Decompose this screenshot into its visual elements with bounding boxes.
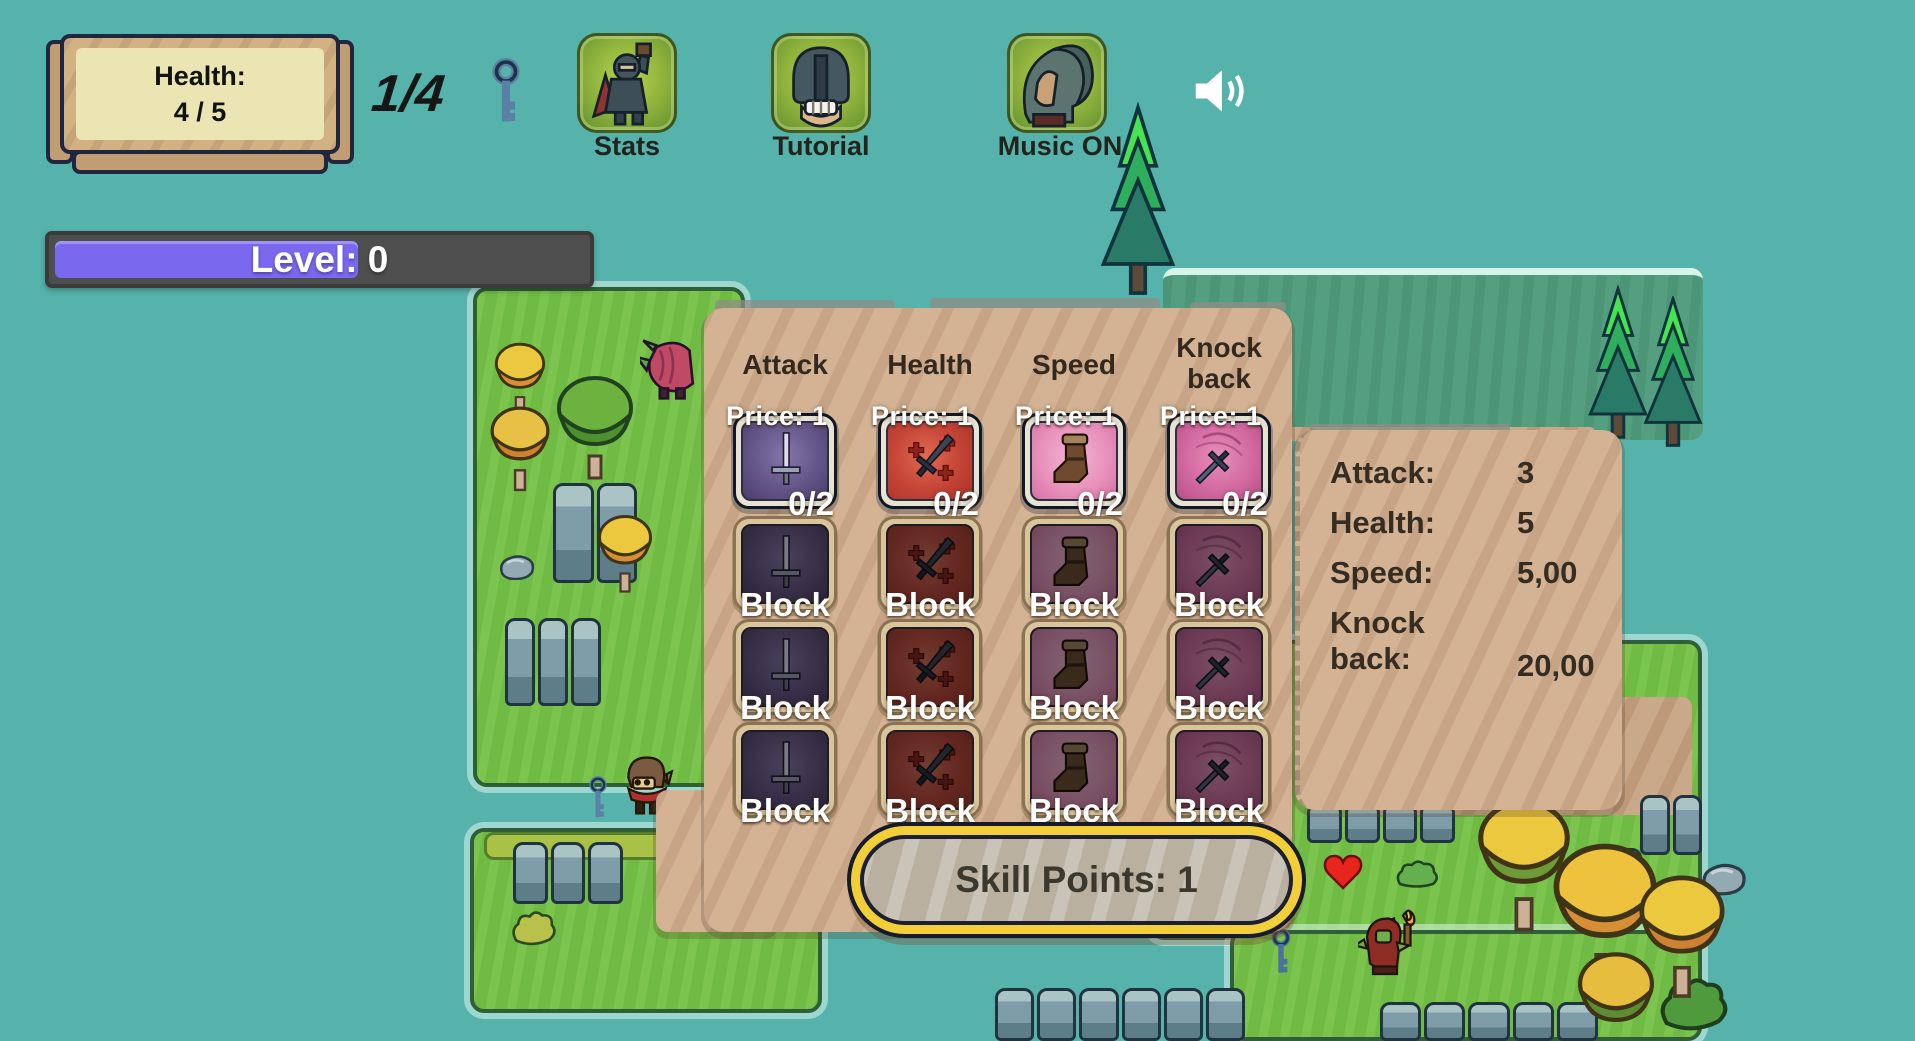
column-header-speed: Speed <box>999 350 1149 381</box>
skill-points-button[interactable]: Skill Points: 1 <box>860 835 1293 925</box>
skill-card-speed-tier2[interactable]: Block <box>1022 516 1126 612</box>
skill-card-knockback-tier4[interactable]: Block <box>1167 722 1271 818</box>
skill-card-health-tier4[interactable]: Block <box>878 722 982 818</box>
key-icon <box>487 58 525 126</box>
cliff-group <box>513 842 623 904</box>
tutorial-button-label[interactable]: Tutorial <box>751 131 891 162</box>
cliff-row <box>995 988 1245 1041</box>
stats-button[interactable] <box>577 33 677 133</box>
price-label: Price: 1 <box>1015 401 1117 432</box>
bush <box>1394 858 1440 890</box>
stat-value-knockback: 20,00 <box>1517 648 1595 684</box>
bush <box>510 906 558 950</box>
boar-monster <box>640 333 706 401</box>
stat-label-knockback: Knock back: <box>1330 605 1490 676</box>
health-banner: Health: 4 / 5 <box>60 34 340 154</box>
skill-card-attack-tier2[interactable]: Block <box>733 516 837 612</box>
skill-card-speed-tier4[interactable]: Block <box>1022 722 1126 818</box>
goblin-torchbearer <box>1358 906 1418 982</box>
column-header-knockback: Knock back <box>1164 333 1274 395</box>
block-label: Block <box>1029 792 1119 830</box>
skill-card-attack-tier3[interactable]: Block <box>733 619 837 715</box>
autumn-tree <box>592 505 658 603</box>
skill-card-knockback-tier2[interactable]: Block <box>1167 516 1271 612</box>
skill-card-health-tier3[interactable]: Block <box>878 619 982 715</box>
health-value: 4 / 5 <box>174 94 227 130</box>
block-label: Block <box>885 792 975 830</box>
pine-tree <box>1098 90 1178 318</box>
green-tree <box>549 372 641 484</box>
column-header-attack: Attack <box>710 350 860 381</box>
health-label: Health: <box>154 58 246 94</box>
block-label: Block <box>1174 792 1264 830</box>
skill-card-speed-tier1[interactable]: Price: 1 0/2 <box>1022 413 1126 509</box>
skill-card-health-tier1[interactable]: Price: 1 0/2 <box>878 413 982 509</box>
price-label: Price: 1 <box>726 401 828 432</box>
skill-card-health-tier2[interactable]: Block <box>878 516 982 612</box>
level-text: Level: 0 <box>49 235 590 284</box>
music-toggle-button[interactable] <box>1007 33 1107 133</box>
cliff-group <box>505 618 601 706</box>
skill-card-attack-tier1[interactable]: Price: 1 0/2 <box>733 413 837 509</box>
level-progress-bar: Level: 0 <box>45 231 594 288</box>
stat-label-attack: Attack: <box>1330 455 1500 491</box>
stat-value-attack: 3 <box>1517 455 1534 491</box>
stat-label-speed: Speed: <box>1330 555 1500 591</box>
tutorial-button[interactable] <box>771 33 871 133</box>
key-pickup <box>1268 928 1294 976</box>
autumn-tree <box>484 403 556 495</box>
stat-label-health: Health: <box>1330 505 1500 541</box>
stats-button-label[interactable]: Stats <box>567 131 687 162</box>
price-label: Price: 1 <box>871 401 973 432</box>
skill-card-attack-tier4[interactable]: Block <box>733 722 837 818</box>
knight-icon <box>580 36 674 130</box>
pine-tree <box>1638 296 1708 454</box>
key-pickup <box>586 776 610 820</box>
heart-pickup <box>1322 852 1364 892</box>
keys-counter: 1/4 <box>369 64 448 124</box>
stat-value-health: 5 <box>1517 505 1534 541</box>
price-label: Price: 1 <box>1160 401 1262 432</box>
column-header-health: Health <box>855 350 1005 381</box>
skill-card-knockback-tier1[interactable]: Price: 1 0/2 <box>1167 413 1271 509</box>
helmet-icon <box>774 36 868 130</box>
speaker-on-icon[interactable] <box>1192 56 1248 126</box>
rock <box>498 553 536 580</box>
stat-value-speed: 5,00 <box>1517 555 1577 591</box>
skill-card-speed-tier3[interactable]: Block <box>1022 619 1126 715</box>
hooded-figure-icon <box>1010 36 1104 130</box>
block-label: Block <box>740 792 830 830</box>
autumn-tree <box>1556 948 1676 1041</box>
skill-card-knockback-tier3[interactable]: Block <box>1167 619 1271 715</box>
game-screen: Attack Health Speed Knock back Price: 1 … <box>0 0 1915 1041</box>
